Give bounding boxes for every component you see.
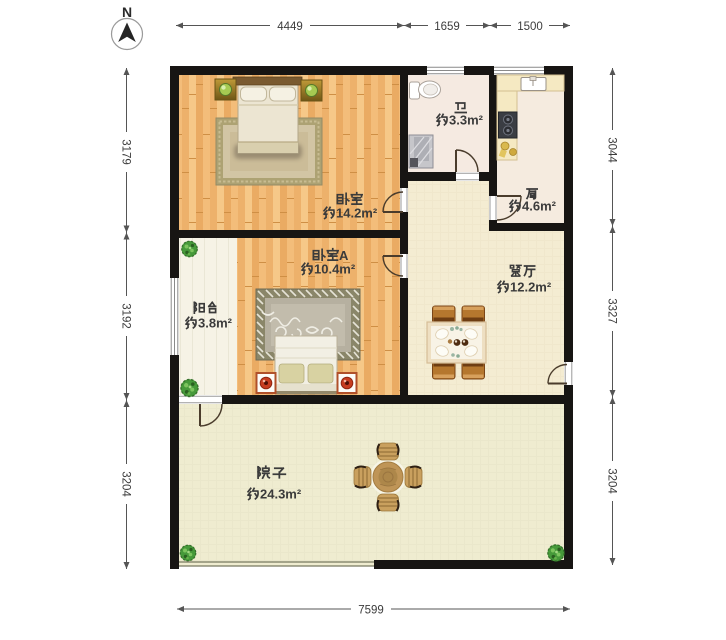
svg-text:24.3m²: 24.3m² [260,487,302,502]
svg-text:3327: 3327 [606,298,618,324]
svg-text:14.2m²: 14.2m² [336,206,378,221]
svg-text:12.2m²: 12.2m² [510,280,552,295]
svg-text:7599: 7599 [358,605,384,617]
svg-text:3204: 3204 [606,468,618,494]
svg-text:3204: 3204 [120,471,132,497]
svg-text:1500: 1500 [517,21,543,33]
svg-text:4.6m²: 4.6m² [522,199,557,214]
svg-text:4449: 4449 [277,21,303,33]
svg-text:3.3m²: 3.3m² [449,113,484,128]
svg-text:3044: 3044 [606,137,618,163]
svg-text:10.4m²: 10.4m² [314,262,356,277]
svg-text:3179: 3179 [120,139,132,165]
svg-text:N: N [122,4,132,20]
svg-text:3.8m²: 3.8m² [198,316,233,331]
svg-text:1659: 1659 [434,21,460,33]
svg-text:3192: 3192 [120,303,132,329]
